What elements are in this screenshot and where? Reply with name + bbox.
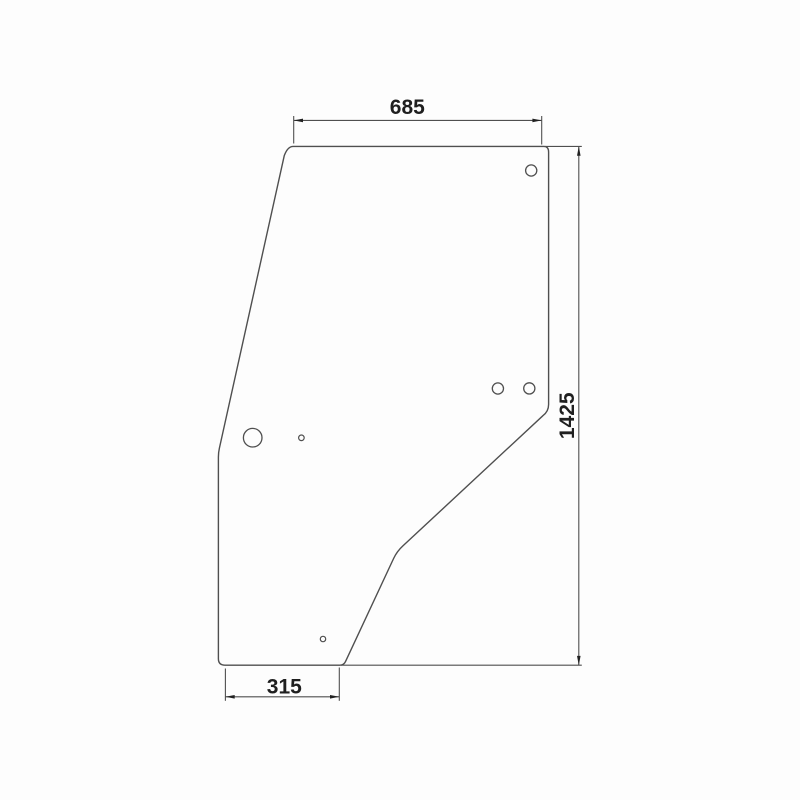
svg-text:315: 315: [267, 676, 302, 699]
svg-text:685: 685: [390, 96, 425, 119]
svg-text:1425: 1425: [556, 392, 579, 439]
